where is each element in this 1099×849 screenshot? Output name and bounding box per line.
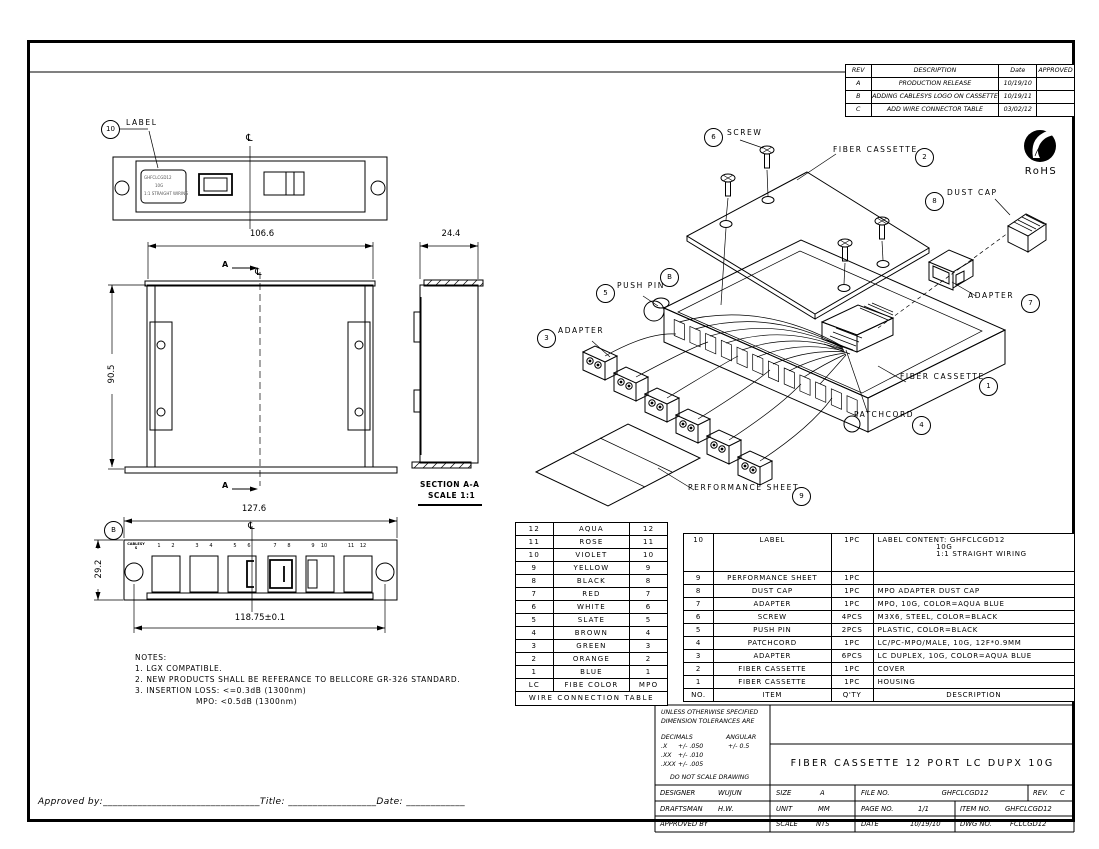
cell: 8 [516,575,554,588]
cell: NO. [684,689,714,702]
cell: 6 [630,601,668,614]
cell [873,572,1074,585]
table-row: 10VIOLET10 [516,549,668,562]
cell: LC/PC-MPO/MALE, 10G, 12F*0.9MM [873,637,1074,650]
cell: 10/19/10 [999,78,1037,91]
cell [1037,104,1075,117]
cell: REV [846,65,872,78]
cell: FIBER CASSETTE [713,663,831,676]
table-row: 8DUST CAP1PCMPO ADAPTER DUST CAP [684,585,1075,598]
table-row: 12AQUA12 [516,523,668,536]
tolerance-xx-value: +/- .010 [678,752,703,759]
callout-adapter-lc: ADAPTER [558,326,604,335]
unit-value: MM [818,805,830,813]
wire-table-title: WIRE CONNECTION TABLE [516,692,668,706]
cell: PERFORMANCE SHEET [713,572,831,585]
label-sticker-line: 1:1 STRAIGHT WIRING [144,191,188,196]
callout-patchcord: PATCHCORD [854,410,914,419]
cell: 7 [516,588,554,601]
table-row: 3GREEN3 [516,640,668,653]
callout-screw: SCREW [727,128,762,137]
cell: 1PC [831,585,873,598]
dwg-no-value: FCLCGD12 [1010,820,1046,828]
table-footer-row: WIRE CONNECTION TABLE [516,692,668,706]
cell: 2PCS [831,624,873,637]
table-row: 8BLACK8 [516,575,668,588]
bom-header-row: NO.ITEMQ'TYDESCRIPTION [684,689,1075,702]
table-row: 2FIBER CASSETTE1PCCOVER [684,663,1075,676]
centerline-symbol: ℄ [255,268,261,278]
cell: 7 [684,598,714,611]
revision-row: C ADD WIRE CONNECTOR TABLE 03/02/12 [846,104,1075,117]
table-row: 6WHITE6 [516,601,668,614]
cell: LABEL CONTENT: GHFCLCGD12 10G 1:1 STRAIG… [873,534,1074,572]
section-letter-bottom: A [222,481,228,490]
note-line: 1. LGX COMPATIBLE. [135,664,222,673]
tolerance-xxx: .XXX [661,761,676,768]
cell: FIBE COLOR [553,679,630,692]
cell: GREEN [553,640,630,653]
cell: ORANGE [553,653,630,666]
cell: PUSH PIN [713,624,831,637]
cell: 6PCS [831,650,873,663]
approved-by-label: APPROVED BY [660,820,708,828]
cell: PRODUCTION RELEASE [871,78,999,91]
cell: C [846,104,872,117]
file-no-label: FILE NO. [861,789,889,797]
dim-width-106-6: 106.6 [233,229,291,239]
cablesys-logo: CABLESYS [126,543,146,551]
callout-push-pin: PUSH PIN [617,281,665,290]
tolerance-line: UNLESS OTHERWISE SPECIFIED [661,709,758,716]
port-number: 6 [244,543,254,549]
unit-label: UNIT [776,805,792,813]
cell: M3X6, STEEL, COLOR=BLACK [873,611,1074,624]
item-no-value: GHFCLCGD12 [1005,805,1052,813]
title-text: Title: [260,797,285,807]
table-row: 1BLUE1 [516,666,668,679]
draftsman-value: H.W. [718,805,734,813]
title-blank: __________________ [288,797,376,807]
size-value: A [820,789,825,797]
dim-width-127-6: 127.6 [225,504,283,514]
centerline-symbol: ℄ [248,522,254,532]
page-no-value: 1/1 [918,805,929,813]
balloon-dust-cap: 8 [925,192,944,211]
cell: 4 [516,627,554,640]
balloon-cover: 2 [915,148,934,167]
label-sticker-line: GHFCLCGD12 [144,175,172,180]
cell: 3 [516,640,554,653]
cell: MPO [630,679,668,692]
cell: 11 [630,536,668,549]
cell: 03/02/12 [999,104,1037,117]
cell: MPO ADAPTER DUST CAP [873,585,1074,598]
revision-table: REV DESCRIPTION Date APPROVED A PRODUCTI… [845,64,1075,117]
revision-row: B ADDING CABLESYS LOGO ON CASSETTE 10/19… [846,91,1075,104]
cell: 5 [684,624,714,637]
cell: 4 [630,627,668,640]
cell: COVER [873,663,1074,676]
cell: B [846,91,872,104]
date-label: DATE [861,820,879,828]
dim-hole-span: 118.75±0.1 [225,613,295,623]
section-letter-top: A [222,260,228,269]
cell: YELLOW [553,562,630,575]
scale-value: NTS [816,820,830,828]
revision-header-row: REV DESCRIPTION Date APPROVED [846,65,1075,78]
cell: LC DUPLEX, 10G, COLOR=AQUA BLUE [873,650,1074,663]
cell: 8 [630,575,668,588]
cell: 2 [630,653,668,666]
balloon-patchcord: 4 [912,416,931,435]
table-row: 1FIBER CASSETTE1PCHOUSING [684,676,1075,689]
tolerance-xxx-value: +/- .005 [678,761,703,768]
cell: 12 [516,523,554,536]
balloon-view-b: B [104,521,123,540]
balloon-performance-sheet: 9 [792,487,811,506]
port-number: 10 [319,543,329,549]
port-number: 7 [270,543,280,549]
cell: APPROVED [1037,65,1075,78]
port-number: 9 [308,543,318,549]
tolerance-x: .X [661,743,667,750]
cell: SCREW [713,611,831,624]
tolerance-angular-label: ANGULAR [726,734,756,741]
cell: BLUE [553,666,630,679]
cell: 6 [516,601,554,614]
drawing-sheet: REV DESCRIPTION Date APPROVED A PRODUCTI… [0,0,1099,849]
balloon-screw: 6 [704,128,723,147]
cell [1037,78,1075,91]
signature-blank: ________________________________ [103,797,260,807]
cell: DESCRIPTION [873,689,1074,702]
port-number: 3 [192,543,202,549]
cell: FIBER CASSETTE [713,676,831,689]
draftsman-label: DRAFTSMAN [660,805,703,813]
note-line: MPO: <0.5dB (1300nm) [196,697,297,706]
cell: 1PC [831,598,873,611]
table-row: 9YELLOW9 [516,562,668,575]
table-row: 6SCREW4PCSM3X6, STEEL, COLOR=BLACK [684,611,1075,624]
cell: 10/19/11 [999,91,1037,104]
designer-value: WUJUN [718,789,742,797]
cell: Q'TY [831,689,873,702]
table-row: 5PUSH PIN2PCSPLASTIC, COLOR=BLACK [684,624,1075,637]
cell: 5 [516,614,554,627]
cell: RED [553,588,630,601]
balloon-housing: 1 [979,377,998,396]
table-row: 4PATCHCORD1PCLC/PC-MPO/MALE, 10G, 12F*0.… [684,637,1075,650]
cell: 10 [630,549,668,562]
callout-housing: FIBER CASSETTE [900,372,985,381]
cell: 6 [684,611,714,624]
cell: ADDING CABLESYS LOGO ON CASSETTE [871,91,999,104]
cell: 7 [630,588,668,601]
cell: ADD WIRE CONNECTOR TABLE [871,104,999,117]
rev-label: REV. [1033,789,1048,797]
section-scale: SCALE 1:1 [428,491,475,500]
callout-cover: FIBER CASSETTE [833,145,918,154]
table-row: 5SLATE5 [516,614,668,627]
cell: Date [999,65,1037,78]
cell: WHITE [553,601,630,614]
table-row: LCFIBE COLORMPO [516,679,668,692]
cell: SLATE [553,614,630,627]
note-line: 2. NEW PRODUCTS SHALL BE REFERANCE TO BE… [135,675,460,684]
tolerance-x-value: +/- .050 [678,743,703,750]
cell: 2 [516,653,554,666]
designer-label: DESIGNER [660,789,695,797]
cell: 10 [684,534,714,572]
cell: 4PCS [831,611,873,624]
cell: 9 [684,572,714,585]
dim-height-29-2: 29.2 [94,549,104,589]
cell: BROWN [553,627,630,640]
table-row: 4BROWN4 [516,627,668,640]
cell: DESCRIPTION [871,65,999,78]
table-row: 3ADAPTER6PCSLC DUPLEX, 10G, COLOR=AQUA B… [684,650,1075,663]
section-caption: SECTION A-A [420,480,479,489]
date-blank: ____________ [406,797,465,807]
cell: ADAPTER [713,598,831,611]
callout-adapter-mpo: ADAPTER [968,291,1014,300]
cell: DUST CAP [713,585,831,598]
callout-dust-cap: DUST CAP [947,188,998,197]
cell: 1PC [831,637,873,650]
table-row: 9PERFORMANCE SHEET1PC [684,572,1075,585]
centerline-symbol: ℄ [246,134,252,144]
table-row: 7ADAPTER1PCMPO, 10G, COLOR=AQUA BLUE [684,598,1075,611]
balloon-adapter-mpo: 7 [1021,294,1040,313]
balloon-label-10: 10 [101,120,120,139]
cell: 1PC [831,572,873,585]
cell: 3 [630,640,668,653]
item-no-label: ITEM NO. [960,805,991,813]
cell: 1PC [831,663,873,676]
table-row: 7RED7 [516,588,668,601]
tolerance-line: DIMENSION TOLERANCES ARE [661,718,754,725]
page-no-label: PAGE NO. [861,805,893,813]
cell: PATCHCORD [713,637,831,650]
cell [1037,91,1075,104]
cell: A [846,78,872,91]
cell: 1 [630,666,668,679]
revision-row: A PRODUCTION RELEASE 10/19/10 [846,78,1075,91]
cell: 5 [630,614,668,627]
cell: 10 [516,549,554,562]
port-number: 11 [346,543,356,549]
cell: PLASTIC, COLOR=BLACK [873,624,1074,637]
scale-label: SCALE [776,820,798,828]
table-row: 11ROSE11 [516,536,668,549]
port-number: 2 [168,543,178,549]
balloon-view-b-exploded: B [660,268,679,287]
cell: ROSE [553,536,630,549]
dim-height-90-5: 90.5 [107,354,117,394]
approved-by-text: Approved by: [38,797,103,807]
cell: AQUA [553,523,630,536]
port-number: 5 [230,543,240,549]
rear-view-label-callout: LABEL [126,118,158,127]
callout-performance-sheet: PERFORMANCE SHEET [688,483,799,492]
cell: 8 [684,585,714,598]
tolerance-xx: .XX [661,752,671,759]
table-row: 2ORANGE2 [516,653,668,666]
cell: 4 [684,637,714,650]
cell: 9 [630,562,668,575]
file-no-value: GHFCLCGD12 [905,789,1025,797]
tolerance-decimals-label: DECIMALS [661,734,693,741]
rohs-label: RoHS [1022,166,1060,177]
port-number: 12 [358,543,368,549]
cell: 9 [516,562,554,575]
port-number: 1 [154,543,164,549]
cell: ITEM [713,689,831,702]
cell: 1PC [831,676,873,689]
dwg-no-label: DWG NO. [960,820,992,828]
table-row: 10LABEL1PCLABEL CONTENT: GHFCLCGD12 10G … [684,534,1075,572]
port-number: 4 [206,543,216,549]
cell: 1 [684,676,714,689]
label-sticker-line: 10G [155,183,163,188]
do-not-scale-note: DO NOT SCALE DRAWING [670,774,749,781]
note-line: 3. INSERTION LOSS: <=0.3dB (1300nm) [135,686,306,695]
cell: BLACK [553,575,630,588]
cell: VIOLET [553,549,630,562]
date-value: 10/19/10 [910,820,941,828]
date-text: Date: [376,797,403,807]
cell: LC [516,679,554,692]
notes-title: NOTES: [135,653,167,662]
approval-signature-line: Approved by:____________________________… [38,797,465,807]
cell: LABEL [713,534,831,572]
wire-connection-table: 12AQUA12 11ROSE11 10VIOLET10 9YELLOW9 8B… [515,522,668,706]
cell: 11 [516,536,554,549]
cell: 3 [684,650,714,663]
balloon-push-pin: 5 [596,284,615,303]
cell: HOUSING [873,676,1074,689]
drawing-title: FIBER CASSETTE 12 PORT LC DUPX 10G [770,758,1075,769]
dim-width-24-4: 24.4 [426,229,476,239]
cell: ADAPTER [713,650,831,663]
cell: 2 [684,663,714,676]
cell: MPO, 10G, COLOR=AQUA BLUE [873,598,1074,611]
size-label: SIZE [776,789,791,797]
tolerance-angular-value: +/- 0.5 [728,743,749,750]
port-number: 8 [284,543,294,549]
cell: 12 [630,523,668,536]
bom-table: 10LABEL1PCLABEL CONTENT: GHFCLCGD12 10G … [683,533,1075,702]
balloon-adapter-lc: 3 [537,329,556,348]
cell: 1 [516,666,554,679]
rev-value: C [1060,789,1065,797]
cell: 1PC [831,534,873,572]
